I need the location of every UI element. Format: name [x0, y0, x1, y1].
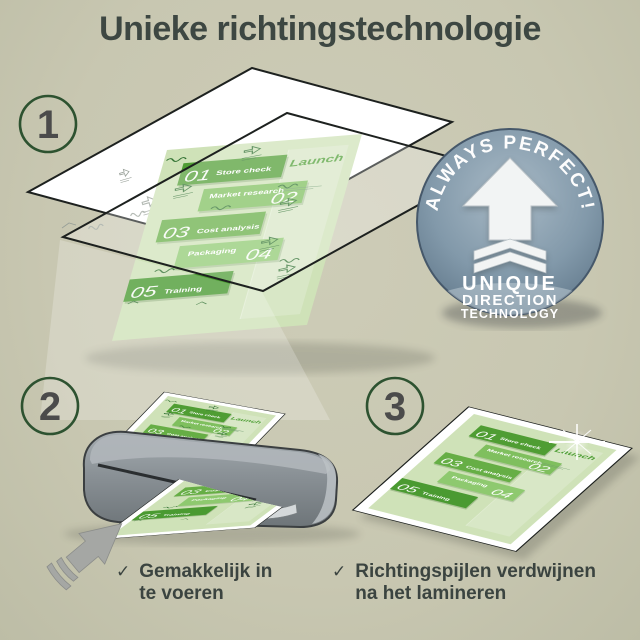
benefit-easy-feed-text: Gemakkelijk in te voeren	[139, 561, 289, 605]
step1-scene	[28, 68, 487, 420]
scene: 01 Store check Market research 02 03 Cos…	[0, 0, 640, 640]
infographic-canvas: Unieke richtingstechnologie	[0, 0, 640, 640]
step2-number: 2	[39, 385, 61, 429]
benefit-arrows-disappear-text: Richtingspijlen verdwijnen na het lamine…	[355, 561, 623, 605]
checkmark-icon: ✓	[332, 561, 346, 583]
always-perfect-badge: ALWAYS PERFECT! UNIQUE DIRECTION TECHNOL…	[417, 129, 603, 328]
benefit-easy-feed: ✓ Gemakkelijk in te voeren	[116, 561, 312, 605]
benefit-arrows-disappear: ✓ Richtingspijlen verdwijnen na het lami…	[332, 561, 632, 605]
badge-line-technology: TECHNOLOGY	[461, 307, 559, 321]
step3-number: 3	[384, 385, 406, 429]
step1-number: 1	[37, 103, 59, 147]
step3-scene	[353, 407, 640, 560]
checkmark-icon: ✓	[116, 561, 130, 583]
